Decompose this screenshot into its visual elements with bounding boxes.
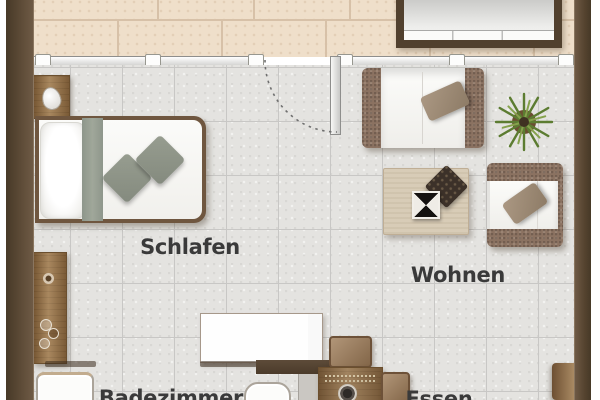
- armchair-rim: [558, 177, 563, 233]
- table-runner: [325, 380, 375, 382]
- room-label-badezimmer: Badezimmer: [99, 386, 243, 400]
- potted-plant: [489, 87, 559, 157]
- armchair: [487, 163, 563, 247]
- outer-wall-right: [574, 0, 591, 400]
- bathtub: [36, 372, 94, 400]
- outer-wall-left: [6, 0, 34, 400]
- sofa: [362, 68, 484, 148]
- sideboard: [33, 252, 67, 364]
- side-chair: [552, 363, 574, 400]
- sofa-arm-left: [362, 68, 381, 148]
- decor-item: [48, 328, 59, 339]
- decor-item: [39, 338, 50, 349]
- dining-plate: [338, 384, 357, 400]
- dining-chair: [329, 336, 372, 368]
- decor-knob: [43, 273, 54, 284]
- dining-table: [318, 367, 383, 400]
- sofa-cushion-divider: [422, 72, 423, 144]
- room-label-wohnen: Wohnen: [411, 263, 505, 287]
- toilet: [244, 382, 291, 400]
- floorplan-canvas: Schlafen Wohnen Badezimmer Essen: [0, 0, 600, 400]
- lowboard-shadow: [200, 361, 257, 367]
- room-label-essen: Essen: [405, 387, 472, 400]
- armchair-arm-top: [487, 163, 563, 181]
- bed-head-pillow: [40, 122, 86, 219]
- decor-bowl: [412, 191, 440, 219]
- armchair-arm-bottom: [487, 229, 563, 247]
- sideboard-shadow: [45, 361, 96, 367]
- room-label-schlafen: Schlafen: [140, 235, 240, 259]
- sofa-arm-right: [465, 68, 484, 148]
- table-runner: [325, 375, 375, 377]
- lowboard: [200, 313, 323, 363]
- bed-throw-blanket: [82, 118, 103, 221]
